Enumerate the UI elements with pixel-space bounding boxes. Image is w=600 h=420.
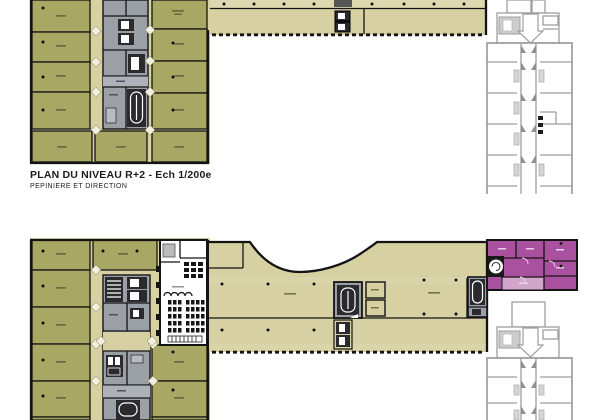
- top-east-outline-wing: [487, 0, 572, 194]
- drawing-sheet: PLAN DU NIVEAU R+2 - Ech 1/200e PEPINIER…: [0, 0, 600, 420]
- service-core: [103, 0, 148, 129]
- bottom-east-wing: [209, 242, 487, 352]
- purple-section: [487, 240, 577, 290]
- plan-title: PLAN DU NIVEAU R+2 - Ech 1/200e: [30, 169, 212, 181]
- plan-subtitle: PEPINIERE ET DIRECTION: [30, 182, 212, 191]
- bottom-east-outline-wing: [487, 302, 572, 420]
- spiral-stair-icon: [488, 256, 504, 277]
- floor-plan-canvas: [0, 0, 600, 420]
- title-block: PLAN DU NIVEAU R+2 - Ech 1/200e PEPINIER…: [30, 169, 212, 191]
- stair-icon: [116, 400, 140, 420]
- stair-icon: [105, 277, 123, 302]
- dark-fittings: [538, 116, 543, 134]
- auditorium-section: [156, 240, 207, 345]
- wc-fixture: [106, 355, 123, 377]
- wc-grid-icon: [184, 262, 203, 278]
- fixture: [163, 244, 175, 257]
- stair-block: [334, 282, 362, 318]
- label-dash: [172, 286, 184, 288]
- service-core: [103, 275, 150, 420]
- plan-top: [30, 0, 572, 194]
- stair-icon: [127, 89, 146, 127]
- elevator-icon: [128, 54, 145, 73]
- plan-bottom: [30, 238, 577, 420]
- top-north-wing: [209, 0, 487, 35]
- elevator-shaft-icon: [335, 11, 350, 32]
- stair-block-east: [468, 277, 487, 317]
- top-west-wing: [30, 0, 210, 164]
